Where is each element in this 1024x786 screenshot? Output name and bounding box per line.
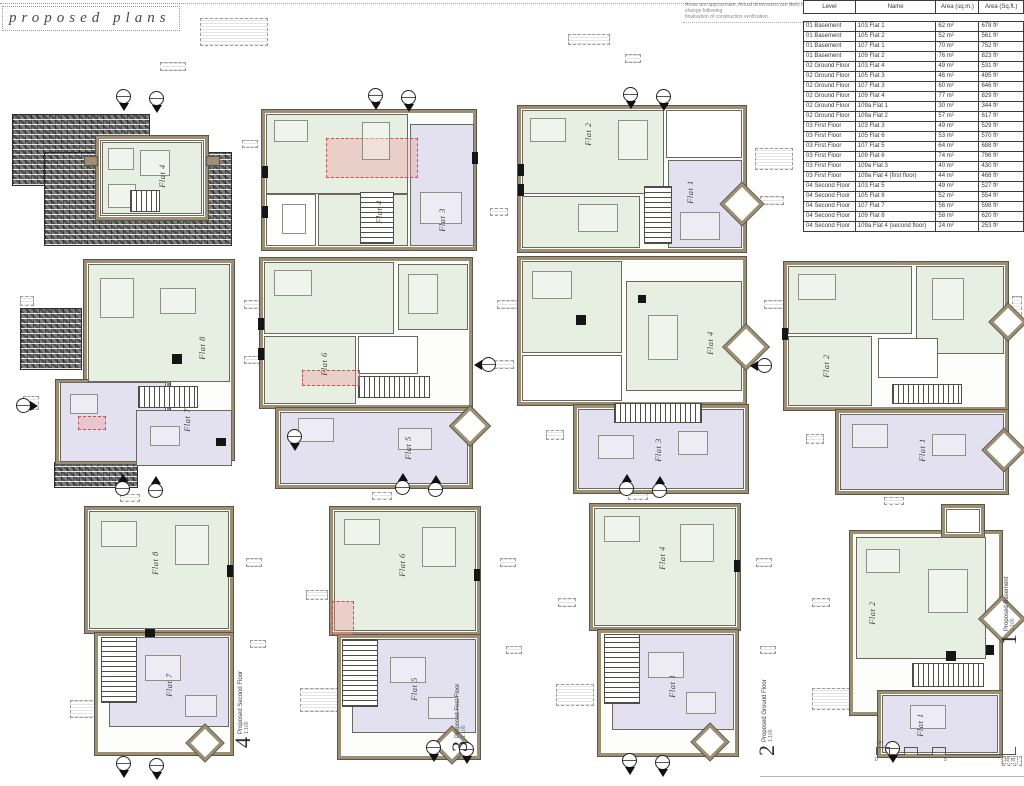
drawing-number: 2	[758, 745, 776, 756]
table-cell: 617 ft²	[979, 112, 1024, 122]
furniture	[274, 120, 308, 142]
furniture	[408, 274, 438, 314]
furniture	[108, 148, 134, 170]
table-cell: 344 ft²	[979, 102, 1024, 112]
stairs	[358, 376, 430, 398]
furniture	[160, 288, 196, 314]
room	[878, 338, 938, 378]
table-cell: 823 ft²	[979, 52, 1024, 62]
table-cell: 02 Ground Floor	[804, 82, 856, 92]
note-callout-box	[884, 497, 904, 505]
red-annotation	[332, 601, 354, 635]
section-marker-arrow-icon	[626, 101, 636, 109]
table-cell: 752 ft²	[979, 42, 1024, 52]
section-marker-arrow-icon	[655, 476, 665, 484]
stairs	[614, 403, 702, 423]
section-marker-arrow-icon	[404, 104, 414, 112]
section-marker-arrow-icon	[429, 754, 439, 762]
plan-second-floor-107: Flat 2Flat 1	[518, 100, 748, 255]
note-callout-box	[558, 598, 576, 607]
section-marker-arrow-icon	[622, 474, 632, 482]
fixture	[576, 315, 586, 325]
furniture	[866, 549, 900, 573]
table-cell: 02 Ground Floor	[804, 102, 856, 112]
note-callout-box	[500, 558, 516, 567]
table-cell: 52 m²	[936, 32, 979, 42]
table-cell: 796 ft²	[979, 152, 1024, 162]
table-cell: 04 Second Floor	[804, 182, 856, 192]
table-cell: 49 m²	[936, 182, 979, 192]
section-marker-arrow-icon	[462, 756, 472, 764]
section-marker-arrow-icon	[625, 767, 635, 775]
note-callout-box	[242, 140, 258, 148]
furniture	[578, 204, 618, 232]
furniture	[422, 527, 456, 567]
table-cell: 40 m²	[936, 162, 979, 172]
furniture	[678, 431, 708, 455]
section-marker-arrow-icon	[371, 102, 381, 110]
table-cell: 58 m²	[936, 212, 979, 222]
plan-first-floor-103: Flat 8Flat 7	[20, 258, 240, 490]
table-cell: 04 Second Floor	[804, 202, 856, 212]
table-cell: 103 Flat 4	[855, 62, 936, 72]
table-cell: 103 Flat 5	[855, 182, 936, 192]
note-callout-box	[755, 148, 793, 170]
header-name: Name	[855, 1, 936, 14]
table-row: 01 Basement109 Flat 276 m²823 ft²	[804, 52, 1024, 62]
table-cell: 646 ft²	[979, 82, 1024, 92]
table-cell: 04 Second Floor	[804, 222, 856, 232]
section-marker-icon	[656, 89, 671, 104]
flat-label: Flat 3	[653, 438, 663, 462]
stairs	[342, 639, 378, 707]
table-cell: 74 m²	[936, 152, 979, 162]
area-schedule-table: Level Name Area (sq.m.) Area (Sq.ft.) 01…	[803, 0, 1024, 232]
table-cell: 430 ft²	[979, 162, 1024, 172]
stairs	[912, 663, 984, 687]
stairs	[644, 186, 672, 244]
table-cell: 57 m²	[936, 112, 979, 122]
flat-label: Flat 6	[319, 352, 329, 376]
table-cell: 03 First Floor	[804, 162, 856, 172]
table-cell: 02 Ground Floor	[804, 72, 856, 82]
stairs	[604, 634, 640, 704]
table-row: 03 First Floor107 Flat 564 m²688 ft²	[804, 142, 1024, 152]
furniture	[390, 657, 426, 683]
table-cell: 253 ft²	[979, 222, 1024, 232]
table-cell: 62 m²	[936, 22, 979, 32]
note-callout-box	[250, 640, 266, 648]
furniture	[100, 278, 134, 318]
fixture	[84, 156, 98, 166]
table-row: 02 Ground Floor105 Flat 346 m²495 ft²	[804, 72, 1024, 82]
table-cell: 107 Flat 5	[855, 142, 936, 152]
fixture	[227, 565, 233, 577]
header-area-sqft: Area (Sq.ft.)	[979, 1, 1024, 14]
note-callout-box	[200, 18, 268, 46]
furniture	[532, 271, 572, 299]
table-cell: 678 ft²	[979, 22, 1024, 32]
table-cell: 103 Flat 3	[855, 122, 936, 132]
drawing-number: 3	[451, 741, 469, 752]
stairs	[892, 384, 962, 404]
table-cell: 107 Flat 7	[855, 202, 936, 212]
note-callout-box	[160, 62, 186, 71]
furniture	[344, 519, 380, 545]
furniture	[298, 418, 334, 442]
scale-bar-ten-label: 10 m	[1001, 756, 1018, 764]
furniture	[618, 120, 648, 160]
table-cell: 02 Ground Floor	[804, 62, 856, 72]
table-cell: 107 Flat 3	[855, 82, 936, 92]
table-cell: 598 ft²	[979, 202, 1024, 212]
table-cell: 103 Flat 1	[855, 22, 936, 32]
note-callout-box	[568, 34, 610, 45]
table-row: 01 Basement107 Flat 170 m²752 ft²	[804, 42, 1024, 52]
furniture	[362, 122, 390, 160]
room	[522, 355, 622, 401]
drawing-title-1: 1Proposed Basement1:100	[1000, 577, 1018, 645]
furniture	[928, 569, 968, 613]
note-callout-box	[372, 492, 392, 500]
plan-ground-floor-103: Flat 8Flat 7	[85, 505, 240, 757]
section-marker-icon	[148, 483, 163, 498]
note-callout-box	[490, 208, 508, 216]
table-cell: 01 Basement	[804, 52, 856, 62]
section-marker-icon	[622, 753, 637, 768]
fixture	[206, 156, 220, 166]
flat-label: Flat 8	[150, 551, 160, 575]
table-cell: 829 ft²	[979, 92, 1024, 102]
table-cell: 109a Flat 4 (first floor)	[855, 172, 936, 182]
flat-label: Flat 1	[667, 674, 677, 698]
section-marker-icon	[149, 91, 164, 106]
table-cell: 44 m²	[936, 172, 979, 182]
scale-bar: 1m 0 5 10 m	[876, 740, 1018, 770]
scale-bar-baseline	[946, 747, 1016, 755]
table-row: 02 Ground Floor109a Flat 130 m²344 ft²	[804, 102, 1024, 112]
table-spacer-row	[804, 14, 1024, 22]
table-cell: 109a Flat 4 (second floor)	[855, 222, 936, 232]
table-row: 03 First Floor103 Flat 349 m²529 ft²	[804, 122, 1024, 132]
section-marker-icon	[623, 87, 638, 102]
drawing-scale: 1:100	[1010, 577, 1016, 631]
table-cell: 02 Ground Floor	[804, 92, 856, 102]
drawing-title-2: 2Proposed Ground Floor1:100	[758, 679, 776, 756]
disclaimer-line-1: Areas are approximate. Actual dimensions…	[685, 2, 809, 14]
roof-hatch	[20, 308, 82, 370]
fixture	[474, 569, 480, 581]
drawing-scale: 1:100	[461, 684, 467, 738]
table-cell: 01 Basement	[804, 42, 856, 52]
fixture	[518, 164, 524, 176]
table-cell: 531 ft²	[979, 62, 1024, 72]
table-row: 03 First Floor105 Flat 653 m²570 ft²	[804, 132, 1024, 142]
plan-first-floor-109: Flat 2Flat 1	[782, 258, 1012, 496]
note-callout-box	[812, 688, 850, 710]
section-marker-arrow-icon	[152, 105, 162, 113]
table-row: 02 Ground Floor109a Flat 257 m²617 ft²	[804, 112, 1024, 122]
table-cell: 109 Flat 8	[855, 212, 936, 222]
page-title: proposed plans	[9, 10, 171, 26]
table-cell: 109a Flat 1	[855, 102, 936, 112]
note-callout-box	[494, 360, 514, 369]
flat-label: Flat 5	[403, 436, 413, 460]
flat-label: Flat 4	[657, 546, 667, 570]
scale-bar-zero-label: 0	[875, 757, 878, 763]
section-marker-arrow-icon	[290, 443, 300, 451]
section-marker-icon	[401, 90, 416, 105]
table-cell: 105 Flat 3	[855, 72, 936, 82]
header-level: Level	[804, 1, 856, 14]
section-marker-arrow-icon	[398, 473, 408, 481]
section-marker-icon	[116, 89, 131, 104]
section-marker-icon	[655, 755, 670, 770]
fixture	[258, 318, 264, 330]
stairs	[138, 386, 198, 408]
note-callout-box	[246, 558, 262, 567]
fixture	[145, 629, 155, 637]
header-area-sqm: Area (sq.m.)	[936, 1, 979, 14]
table-cell: 64 m²	[936, 142, 979, 152]
table-cell: 109a Flat 2	[855, 112, 936, 122]
fixture	[518, 184, 524, 196]
table-row: 04 Second Floor105 Flat 852 m²554 ft²	[804, 192, 1024, 202]
furniture	[150, 426, 180, 446]
section-marker-icon	[395, 480, 410, 495]
fixture	[472, 152, 478, 164]
table-cell: 620 ft²	[979, 212, 1024, 222]
table-cell: 30 m²	[936, 102, 979, 112]
table-cell: 56 m²	[936, 202, 979, 212]
fixture	[262, 166, 268, 178]
table-cell: 105 Flat 8	[855, 192, 936, 202]
fixture	[782, 328, 788, 340]
table-cell: 495 ft²	[979, 72, 1024, 82]
table-cell: 109 Flat 2	[855, 52, 936, 62]
furniture	[274, 270, 312, 296]
flat-label: Flat 1	[917, 438, 927, 462]
room	[666, 110, 742, 158]
drawing-title-4: 4Proposed Second Floor1:100	[234, 671, 252, 748]
table-cell: 46 m²	[936, 72, 979, 82]
table-row: 04 Second Floor103 Flat 549 m²527 ft²	[804, 182, 1024, 192]
disclaimer-note: Areas are approximate. Actual dimensions…	[683, 1, 811, 23]
table-cell: 561 ft²	[979, 32, 1024, 42]
table-cell: 570 ft²	[979, 132, 1024, 142]
table-row: 04 Second Floor109 Flat 858 m²620 ft²	[804, 212, 1024, 222]
room	[358, 336, 418, 374]
furniture	[598, 435, 634, 459]
table-cell: 77 m²	[936, 92, 979, 102]
section-marker-icon	[115, 481, 130, 496]
table-row: 01 Basement103 Flat 162 m²678 ft²	[804, 22, 1024, 32]
note-callout-box	[625, 54, 641, 63]
table-cell: 468 ft²	[979, 172, 1024, 182]
note-callout-box	[760, 646, 776, 654]
table-row: 03 First Floor109a Flat 4 (first floor)4…	[804, 172, 1024, 182]
flat-label: Flat 1	[685, 180, 695, 204]
plan-basement-109: Flat 2Flat 1	[850, 505, 1010, 755]
table-cell: 03 First Floor	[804, 172, 856, 182]
furniture	[145, 655, 181, 681]
table-cell: 70 m²	[936, 42, 979, 52]
furniture	[680, 524, 714, 562]
table-row: 01 Basement105 Flat 252 m²561 ft²	[804, 32, 1024, 42]
section-marker-arrow-icon	[119, 103, 129, 111]
furniture	[648, 652, 684, 678]
table-cell: 03 First Floor	[804, 122, 856, 132]
section-marker-arrow-icon	[152, 772, 162, 780]
table-row: 02 Ground Floor103 Flat 449 m²531 ft²	[804, 62, 1024, 72]
table-cell: 109a Flat 3	[855, 162, 936, 172]
furniture	[680, 212, 720, 240]
furniture	[70, 394, 98, 414]
section-marker-arrow-icon	[658, 769, 668, 777]
furniture	[604, 516, 640, 542]
flat-label: Flat 4	[705, 331, 715, 355]
fixture	[258, 348, 264, 360]
page-title-box: proposed plans	[2, 6, 180, 31]
note-callout-box	[306, 590, 328, 600]
table-cell: 03 First Floor	[804, 142, 856, 152]
table-cell: 01 Basement	[804, 32, 856, 42]
scale-bar-wave	[876, 747, 946, 755]
table-cell: 60 m²	[936, 82, 979, 92]
flat-label: Flat 7	[164, 673, 174, 697]
drawing-number: 4	[234, 737, 252, 748]
section-marker-arrow-icon	[750, 361, 758, 371]
section-marker-icon	[426, 740, 441, 755]
table-header-row: Level Name Area (sq.m.) Area (Sq.ft.)	[804, 1, 1024, 14]
section-marker-icon	[428, 482, 443, 497]
note-callout-box	[760, 196, 784, 205]
flat-label: Flat 3	[437, 208, 447, 232]
furniture	[282, 204, 306, 234]
flat-label: Flat 5	[409, 677, 419, 701]
section-marker-icon	[652, 483, 667, 498]
furniture	[530, 118, 566, 142]
section-marker-icon	[757, 358, 772, 373]
table-cell: 02 Ground Floor	[804, 112, 856, 122]
section-marker-icon	[481, 357, 496, 372]
table-row: 03 First Floor109a Flat 340 m²430 ft²	[804, 162, 1024, 172]
table-cell: 49 m²	[936, 122, 979, 132]
fixture	[638, 295, 646, 303]
flat-label: Flat 4	[157, 164, 167, 188]
furniture	[686, 692, 716, 714]
table-cell: 24 m²	[936, 222, 979, 232]
note-callout-box	[506, 646, 522, 654]
section-marker-icon	[116, 756, 131, 771]
red-annotation	[78, 416, 106, 430]
flat-label: Flat 8	[197, 336, 207, 360]
table-cell: 529 ft²	[979, 122, 1024, 132]
table-cell: 105 Flat 6	[855, 132, 936, 142]
section-marker-icon	[16, 398, 31, 413]
section-marker-arrow-icon	[30, 401, 38, 411]
plan-first-floor-107: Flat 4Flat 3	[518, 255, 758, 495]
fixture	[262, 206, 268, 218]
note-callout-box	[497, 300, 519, 309]
plan-roof: Flat 4	[12, 98, 232, 252]
note-callout-box	[556, 684, 594, 706]
fixture	[946, 651, 956, 661]
table-row: 04 Second Floor109a Flat 4 (second floor…	[804, 222, 1024, 232]
section-marker-arrow-icon	[659, 103, 669, 111]
table-cell: 04 Second Floor	[804, 192, 856, 202]
furniture	[798, 274, 836, 300]
table-cell: 03 First Floor	[804, 132, 856, 142]
scale-bar-unit-label: 1m	[876, 740, 883, 746]
section-marker-arrow-icon	[151, 476, 161, 484]
plan-ground-floor-107: Flat 4Flat 1	[590, 500, 745, 760]
fixture	[734, 560, 740, 572]
table-cell: 107 Flat 1	[855, 42, 936, 52]
flat-label: Flat 6	[397, 553, 407, 577]
flat-label: Flat 2	[821, 354, 831, 378]
flat-label: Flat 2	[867, 601, 877, 625]
table-cell: 105 Flat 2	[855, 32, 936, 42]
section-marker-arrow-icon	[118, 474, 128, 482]
section-marker-arrow-icon	[119, 770, 129, 778]
scale-bar-five-label: 5	[944, 757, 947, 763]
drawing-scale: 1:100	[244, 671, 250, 734]
fixture	[172, 354, 182, 364]
fixture	[216, 438, 226, 446]
flat-label: Flat 4	[374, 200, 384, 224]
red-annotation	[302, 370, 360, 386]
table-cell: 01 Basement	[804, 22, 856, 32]
table-row: 03 First Floor109 Flat 674 m²796 ft²	[804, 152, 1024, 162]
furniture	[175, 525, 209, 565]
flat-label: Flat 7	[182, 408, 192, 432]
section-marker-arrow-icon	[431, 475, 441, 483]
table-cell: 03 First Floor	[804, 152, 856, 162]
section-marker-arrow-icon	[474, 360, 482, 370]
drawing-scale: 1:100	[768, 679, 774, 742]
room	[946, 509, 980, 533]
plan-first-floor-105: Flat 6Flat 5	[258, 258, 480, 490]
stairs	[130, 190, 160, 212]
note-callout-box	[812, 598, 830, 607]
furniture	[185, 695, 217, 717]
table-cell: 49 m²	[936, 62, 979, 72]
table-cell: 52 m²	[936, 192, 979, 202]
plan-second-floor-105: Flat 4Flat 3	[262, 108, 478, 250]
drawing-number: 1	[1000, 634, 1018, 645]
table-cell: 554 ft²	[979, 192, 1024, 202]
table-cell: 109 Flat 4	[855, 92, 936, 102]
table-cell: 527 ft²	[979, 182, 1024, 192]
drawing-title-3: 3Proposed First Floor1:100	[451, 684, 469, 752]
stairs	[101, 637, 137, 703]
drawing-sheet: proposed plans Areas are approximate. Ac…	[0, 0, 1024, 786]
section-marker-icon	[368, 88, 383, 103]
furniture	[648, 315, 678, 360]
table-cell: 76 m²	[936, 52, 979, 62]
furniture	[932, 278, 964, 320]
table-cell: 109 Flat 6	[855, 152, 936, 162]
disclaimer-line-2: finalisation of construction verificatio…	[685, 14, 809, 20]
table-cell: 04 Second Floor	[804, 212, 856, 222]
furniture	[101, 521, 137, 547]
section-marker-icon	[149, 758, 164, 773]
furniture	[852, 424, 888, 448]
sheet-bottom-rule	[760, 776, 1024, 777]
fixture	[986, 645, 994, 655]
section-marker-icon	[287, 429, 302, 444]
